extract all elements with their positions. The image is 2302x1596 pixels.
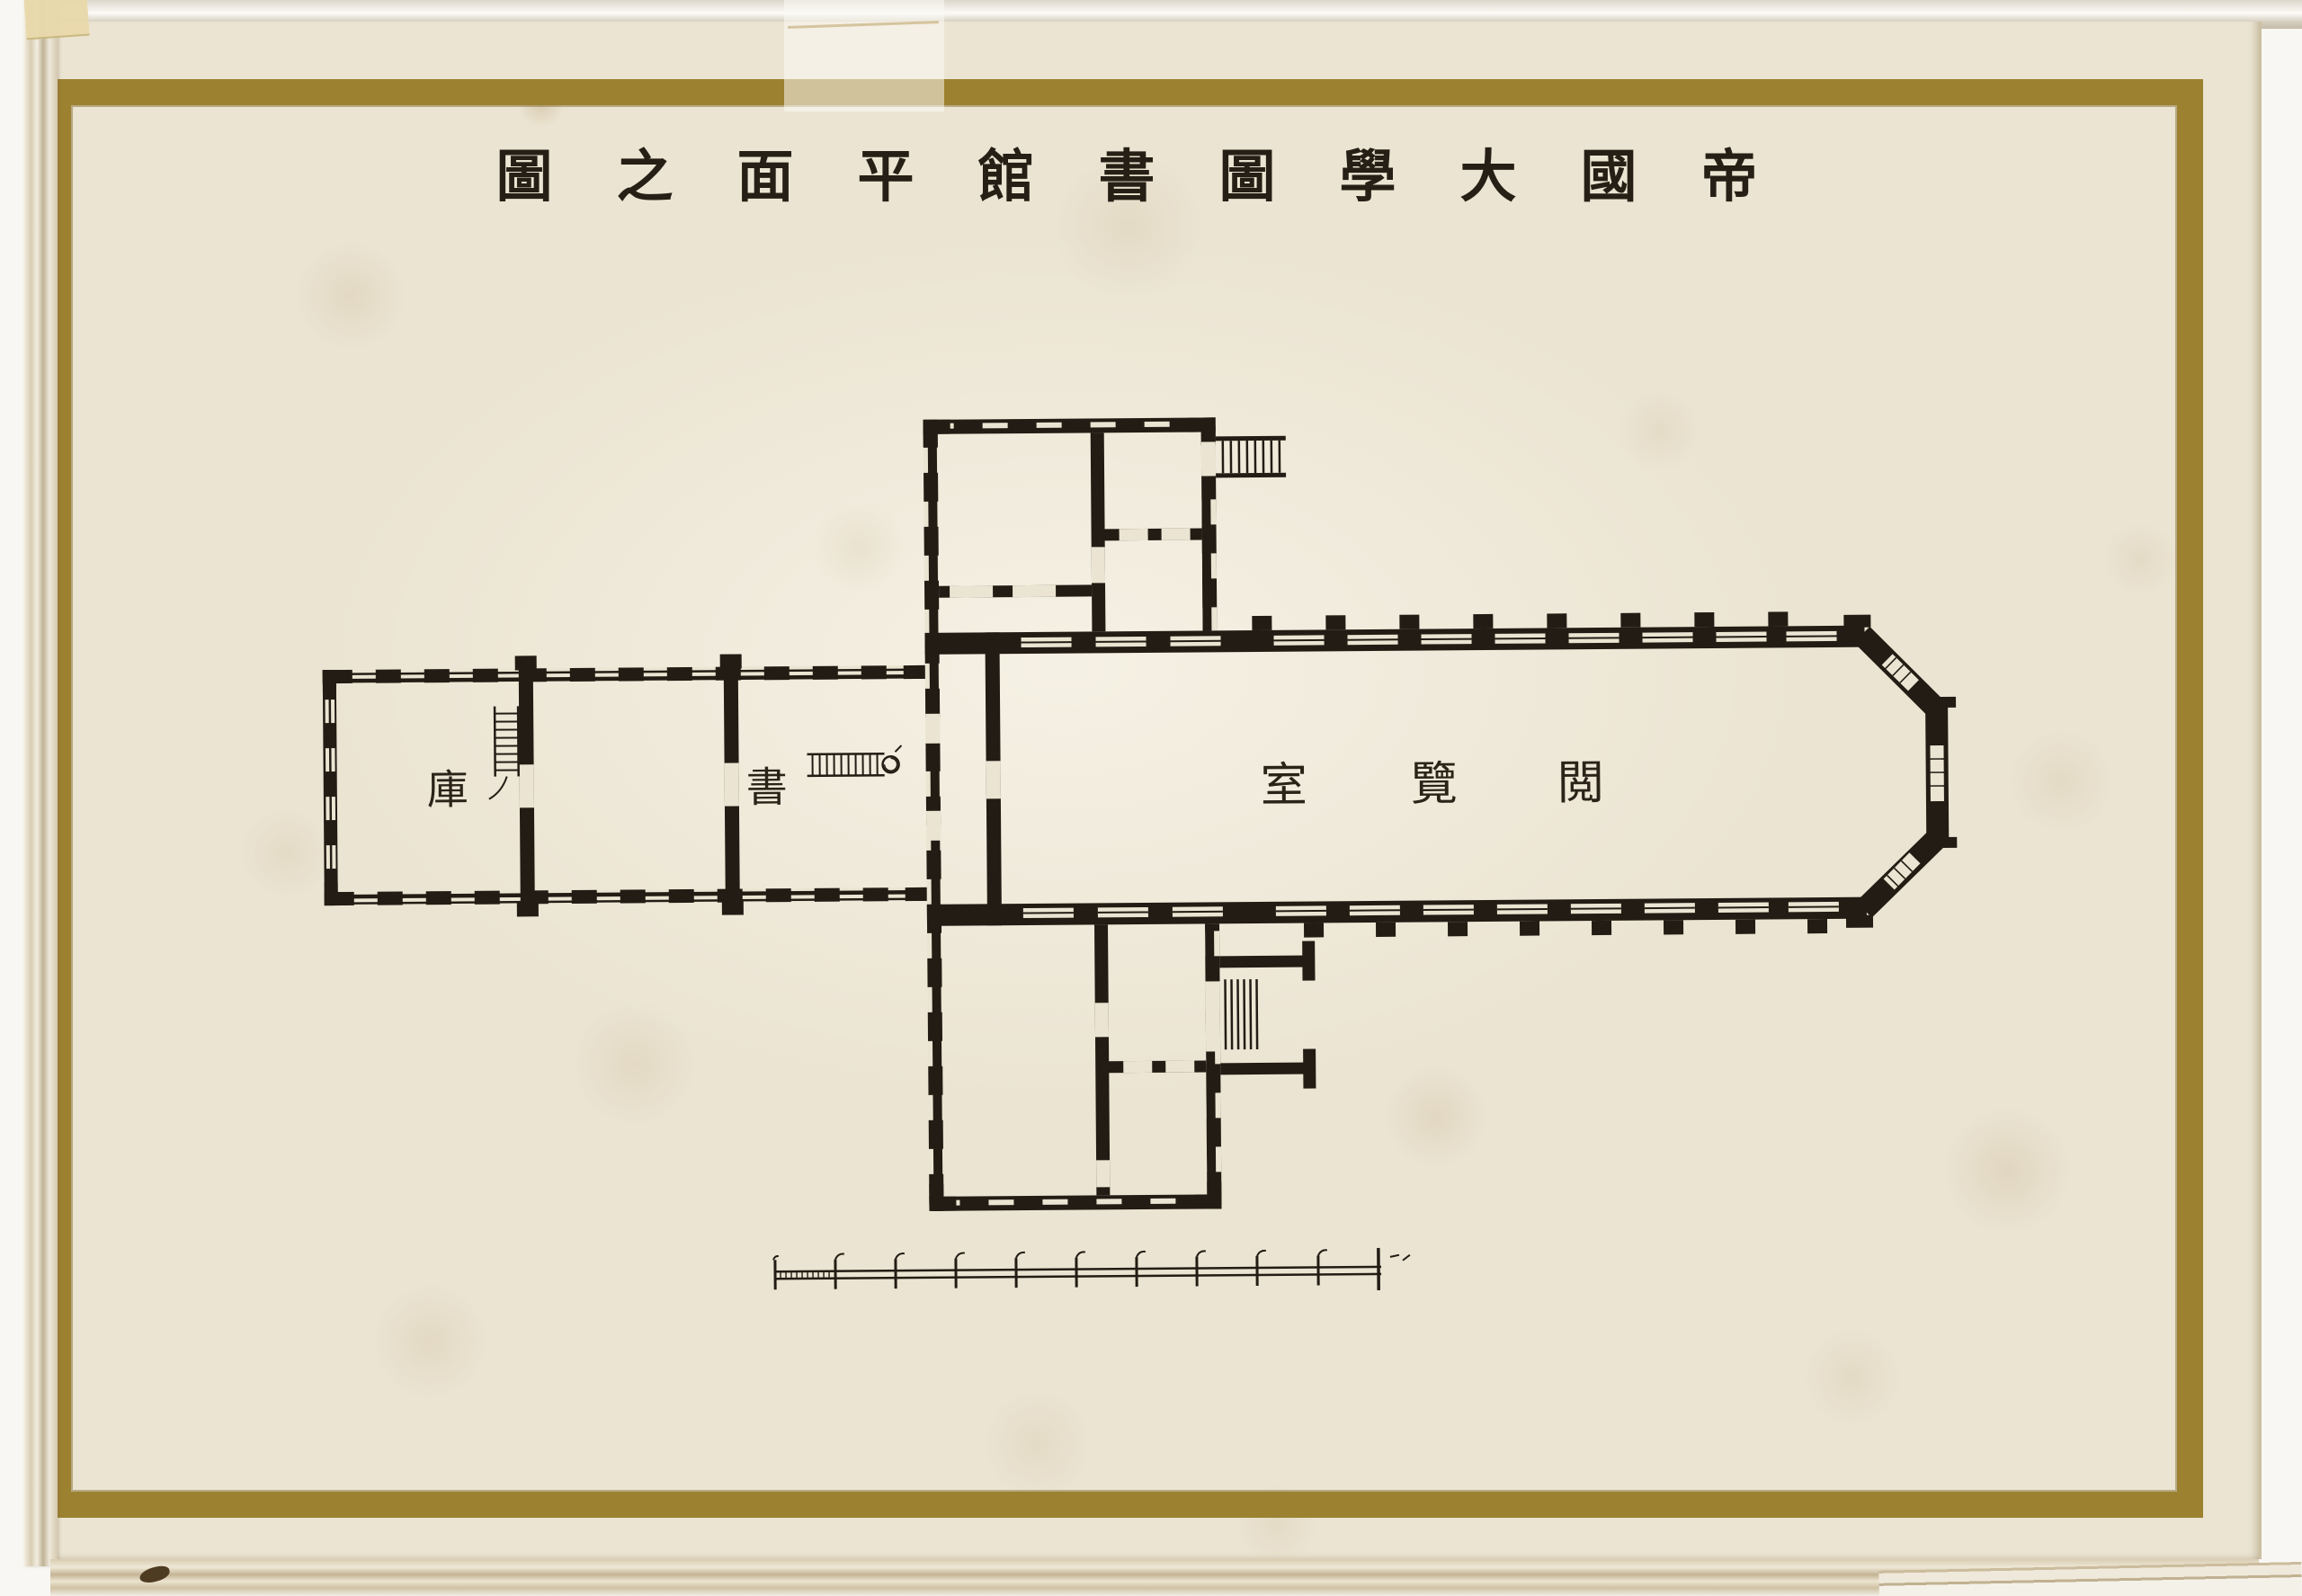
stack-doorway-east [725, 763, 739, 807]
north-block-partition [1091, 432, 1106, 631]
stack-doorway-west [520, 764, 534, 807]
stack-room-east-area [738, 679, 927, 889]
west-wall-doorway-north [925, 714, 940, 744]
scale-bar-figures [773, 1250, 1410, 1266]
north-east-room-area [1104, 432, 1202, 529]
north-entrance-steps-icon [1201, 436, 1286, 478]
floor-plan-drawing: 庫 書 [0, 0, 2302, 1596]
reading-room-wing: 室 覽 閲 [924, 611, 1958, 941]
north-west-room-area [938, 432, 1092, 585]
book-stack-wing: 庫 書 [323, 653, 929, 918]
cross-wing-north-wall [923, 417, 1216, 434]
reading-room-doorway [986, 761, 1001, 798]
south-east-room-area [1109, 1072, 1207, 1195]
stack-room-middle-area [533, 681, 726, 891]
stack-west-wall [323, 670, 338, 905]
west-wall-doorway-south [926, 811, 941, 841]
scale-bar [773, 1248, 1410, 1296]
reading-room-area [1000, 646, 1901, 904]
photographed-book-plate: { "title": { "chars": ["圖","之","面","平","… [0, 0, 2302, 1596]
stack-room-west-area [336, 682, 521, 892]
south-block-partition [1094, 924, 1110, 1195]
cross-wing-south-wall [929, 1194, 1221, 1211]
cross-wing-east-wall-south [1205, 923, 1221, 1194]
south-west-room-area [941, 924, 1096, 1196]
south-entrance-steps-icon [1205, 941, 1316, 1089]
